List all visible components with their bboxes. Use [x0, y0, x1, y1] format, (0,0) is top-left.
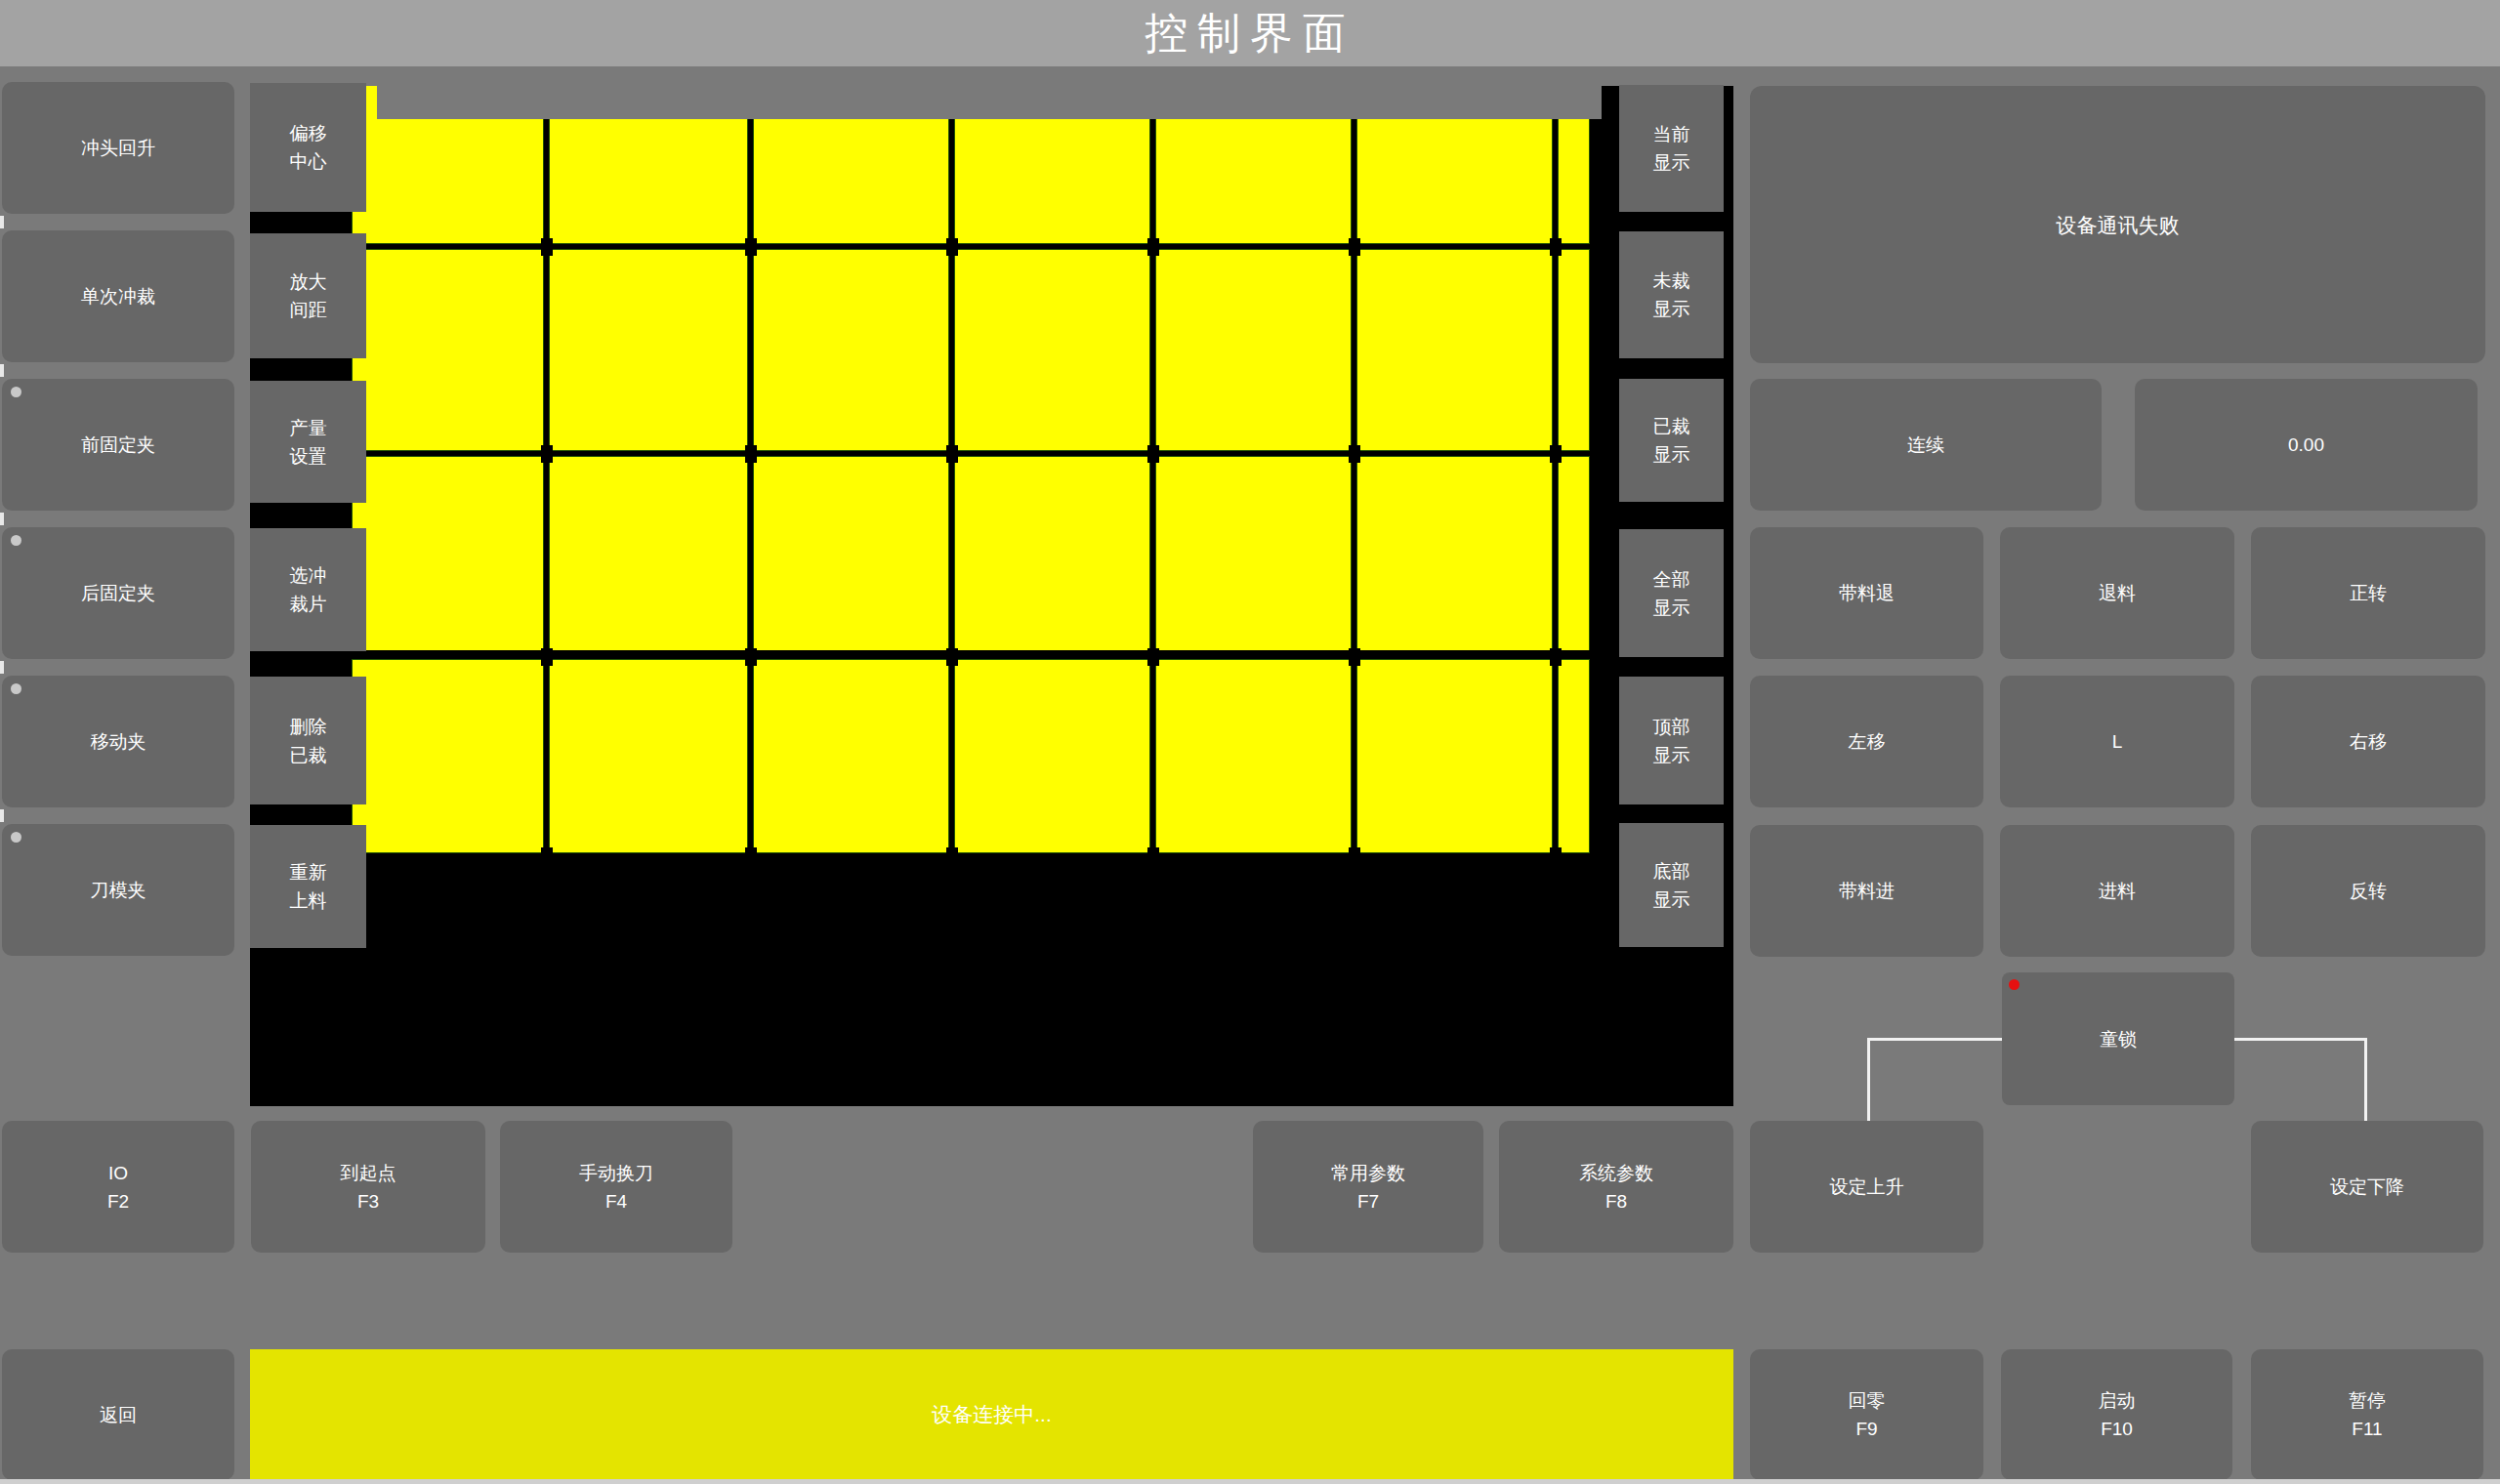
single-cut-button[interactable]: 单次冲裁 [2, 230, 234, 362]
bracket-line [2234, 1038, 2366, 1041]
material-piece[interactable] [954, 659, 1150, 853]
grid-intersection-tick [1349, 648, 1360, 666]
grid-intersection-tick [745, 238, 757, 256]
io-button[interactable]: IO F2 [2, 1121, 234, 1253]
material-piece[interactable] [1356, 117, 1553, 244]
button-label: 进料 [2099, 877, 2136, 905]
material-piece[interactable] [549, 659, 748, 853]
indicator-dot [11, 535, 21, 546]
grid-intersection-tick [745, 445, 757, 463]
button-label: 设定下降 [2330, 1173, 2404, 1201]
show-current-button[interactable]: 当前 显示 [1619, 85, 1724, 212]
grid-intersection-tick [541, 648, 553, 666]
set-rise-button[interactable]: 设定上升 [1750, 1121, 1983, 1253]
grid-intersection-tick [1550, 445, 1562, 463]
button-label: 手动换刀 F4 [579, 1159, 653, 1216]
edge-tick [0, 809, 4, 822]
grid-intersection-tick [541, 445, 553, 463]
edge-tick [0, 661, 4, 674]
move-clamp-button[interactable]: 移动夹 [2, 676, 234, 807]
manual-tool-change-button[interactable]: 手动换刀 F4 [500, 1121, 732, 1253]
material-piece[interactable] [954, 456, 1150, 654]
pause-button[interactable]: 暂停 F11 [2251, 1349, 2483, 1480]
material-piece[interactable] [1558, 249, 1590, 451]
button-label: 选冲 裁片 [290, 561, 327, 618]
material-piece[interactable] [1356, 456, 1553, 654]
common-params-button[interactable]: 常用参数 F7 [1253, 1121, 1483, 1253]
unload-button[interactable]: 退料 [2000, 527, 2234, 659]
button-label: 常用参数 F7 [1331, 1159, 1405, 1216]
button-label: 产量 设置 [290, 414, 327, 471]
button-label: 刀模夹 [91, 876, 146, 904]
child-lock-indicator [2009, 979, 2020, 990]
material-piece[interactable] [352, 249, 544, 451]
button-label: L [2112, 727, 2123, 756]
button-label: 未裁 显示 [1653, 267, 1690, 323]
grid-intersection-tick [745, 648, 757, 666]
grid-intersection-tick [541, 847, 553, 865]
button-label: 移动夹 [91, 727, 146, 756]
die-clamp-button[interactable]: 刀模夹 [2, 824, 234, 956]
grid-intersection-tick [1147, 648, 1159, 666]
material-piece[interactable] [1155, 456, 1352, 654]
back-button[interactable]: 返回 [2, 1349, 234, 1480]
strip-forward-button[interactable]: 带料进 [1750, 825, 1983, 957]
material-piece[interactable] [753, 659, 949, 853]
material-piece[interactable] [549, 249, 748, 451]
reload-material-button[interactable]: 重新 上料 [250, 825, 366, 948]
row-divider [350, 650, 1593, 657]
grid-intersection-tick [541, 238, 553, 256]
grid-intersection-tick [1147, 847, 1159, 865]
material-piece[interactable] [549, 117, 748, 244]
delete-cut-button[interactable]: 删除 已裁 [250, 677, 366, 804]
material-piece[interactable] [753, 456, 949, 654]
button-label: 当前 显示 [1653, 120, 1690, 177]
button-label: 系统参数 F8 [1579, 1159, 1653, 1216]
show-uncut-button[interactable]: 未裁 显示 [1619, 231, 1724, 358]
material-piece[interactable] [352, 659, 544, 853]
connection-status-bar: 设备连接中... [250, 1349, 1733, 1480]
indicator-dot [11, 683, 21, 694]
button-label: 回零 F9 [1849, 1386, 1886, 1443]
button-label: 返回 [100, 1401, 137, 1429]
button-label: 退料 [2099, 579, 2136, 607]
rear-clamp-button[interactable]: 后固定夹 [2, 527, 234, 659]
button-label: 删除 已裁 [290, 713, 327, 769]
grid-intersection-tick [1147, 238, 1159, 256]
message-text: 设备通讯失败 [2057, 211, 2180, 239]
material-piece[interactable] [753, 117, 949, 244]
button-label: 单次冲裁 [81, 282, 155, 310]
front-clamp-button[interactable]: 前固定夹 [2, 379, 234, 511]
material-piece[interactable] [1558, 456, 1590, 654]
material-piece[interactable] [954, 249, 1150, 451]
material-piece[interactable] [1155, 249, 1352, 451]
screen-bottom-edge [0, 1479, 2500, 1484]
button-label: 左移 [1849, 727, 1886, 756]
comm-status-message: 设备通讯失败 [1750, 86, 2485, 363]
grid-intersection-tick [745, 847, 757, 865]
grid-intersection-tick [1349, 445, 1360, 463]
value-text: 0.00 [2288, 431, 2324, 459]
material-canvas [250, 86, 1733, 1106]
l-button[interactable]: L [2000, 676, 2234, 807]
grid-intersection-tick [1550, 648, 1562, 666]
canvas-marker-tick [366, 86, 377, 119]
forward-rotate-button[interactable]: 正转 [2251, 527, 2485, 659]
grid-intersection-tick [1349, 238, 1360, 256]
button-label: 前固定夹 [81, 431, 155, 459]
button-label: 设定上升 [1830, 1173, 1904, 1201]
move-left-button[interactable]: 左移 [1750, 676, 1983, 807]
to-origin-button[interactable]: 到起点 F3 [251, 1121, 485, 1253]
material-piece[interactable] [753, 249, 949, 451]
grid-intersection-tick [946, 847, 958, 865]
continuous-mode-button[interactable]: 连续 [1750, 379, 2102, 511]
bracket-line [2364, 1038, 2367, 1121]
child-lock-button[interactable]: 童锁 [2002, 972, 2234, 1105]
material-piece[interactable] [1558, 659, 1590, 853]
move-right-button[interactable]: 右移 [2251, 676, 2485, 807]
yield-setting-button[interactable]: 产量 设置 [250, 381, 366, 503]
button-label: 重新 上料 [290, 858, 327, 915]
position-value-display: 0.00 [2135, 379, 2478, 511]
feed-button[interactable]: 进料 [2000, 825, 2234, 957]
button-label: 正转 [2350, 579, 2387, 607]
material-piece[interactable] [1356, 659, 1553, 853]
button-label: 带料退 [1839, 579, 1895, 607]
indicator-dot [11, 387, 21, 397]
button-label: 冲头回升 [81, 134, 155, 162]
button-label: 底部 显示 [1653, 857, 1690, 914]
button-label: 顶部 显示 [1653, 713, 1690, 769]
material-piece[interactable] [1356, 249, 1553, 451]
material-piece[interactable] [549, 456, 748, 654]
grid-intersection-tick [1550, 847, 1562, 865]
grid-intersection-tick [946, 445, 958, 463]
button-label: 放大 间距 [290, 268, 327, 324]
enlarge-gap-button[interactable]: 放大 间距 [250, 233, 366, 358]
button-label: 已裁 显示 [1653, 412, 1690, 469]
button-label: IO F2 [107, 1159, 129, 1216]
material-piece[interactable] [352, 117, 544, 244]
button-label: 偏移 中心 [290, 119, 327, 176]
button-label: 反转 [2350, 877, 2387, 905]
punch-return-button[interactable]: 冲头回升 [2, 82, 234, 214]
start-button[interactable]: 启动 F10 [2001, 1349, 2232, 1480]
grid-intersection-tick [1349, 847, 1360, 865]
canvas-top-strip [250, 86, 1602, 119]
grid-intersection-tick [1147, 445, 1159, 463]
show-all-button[interactable]: 全部 显示 [1619, 529, 1724, 657]
select-piece-button[interactable]: 选冲 裁片 [250, 528, 366, 651]
indicator-dot [11, 832, 21, 843]
show-cut-button[interactable]: 已裁 显示 [1619, 379, 1724, 502]
offset-center-button[interactable]: 偏移 中心 [250, 83, 366, 212]
button-label: 连续 [1907, 431, 1944, 459]
button-label: 全部 显示 [1653, 565, 1690, 622]
button-label: 童锁 [2100, 1025, 2137, 1053]
material-piece[interactable] [954, 117, 1150, 244]
set-fall-button[interactable]: 设定下降 [2251, 1121, 2483, 1253]
button-label: 带料进 [1839, 877, 1895, 905]
material-piece[interactable] [352, 456, 544, 654]
grid-intersection-tick [1550, 238, 1562, 256]
button-label: 右移 [2350, 727, 2387, 756]
home-button[interactable]: 回零 F9 [1750, 1349, 1983, 1480]
show-top-button[interactable]: 顶部 显示 [1619, 677, 1724, 804]
material-piece[interactable] [1558, 117, 1590, 244]
edge-tick [0, 364, 4, 377]
system-params-button[interactable]: 系统参数 F8 [1499, 1121, 1733, 1253]
edge-tick [0, 513, 4, 525]
status-text: 设备连接中... [932, 1401, 1052, 1428]
page-title: 控制界面 [0, 0, 2500, 66]
bracket-line [1867, 1038, 1870, 1121]
reverse-rotate-button[interactable]: 反转 [2251, 825, 2485, 957]
material-piece[interactable] [1155, 659, 1352, 853]
strip-back-button[interactable]: 带料退 [1750, 527, 1983, 659]
button-label: 后固定夹 [81, 579, 155, 607]
bracket-line [1867, 1038, 2002, 1041]
edge-tick [0, 216, 4, 228]
material-piece[interactable] [1155, 117, 1352, 244]
button-label: 暂停 F11 [2349, 1386, 2386, 1443]
button-label: 到起点 F3 [341, 1159, 396, 1216]
show-bottom-button[interactable]: 底部 显示 [1619, 823, 1724, 947]
button-label: 启动 F10 [2099, 1386, 2136, 1443]
grid-intersection-tick [946, 238, 958, 256]
grid-intersection-tick [946, 648, 958, 666]
